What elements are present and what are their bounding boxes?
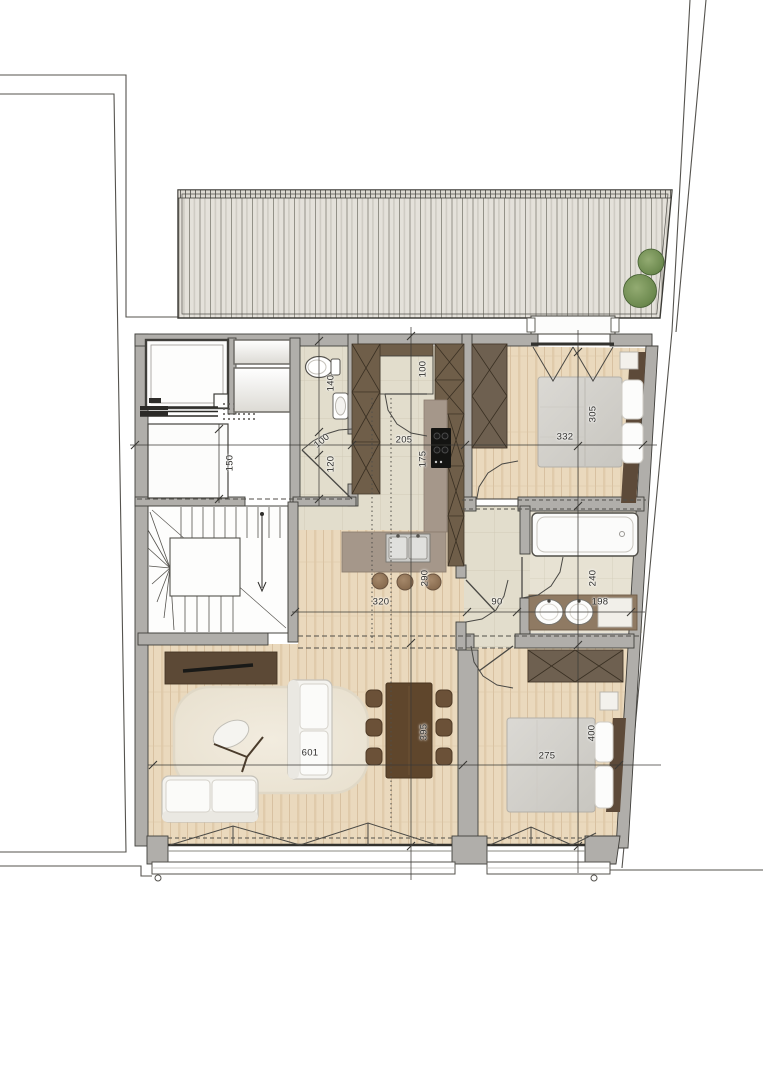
storage-void-room xyxy=(146,340,228,408)
dimension-label-island: 290 xyxy=(420,570,431,587)
bar-stools xyxy=(372,573,441,590)
kitchen-island-sink-icon xyxy=(386,534,430,562)
duct-cupboards xyxy=(234,340,290,412)
dimension-label-corridor: 320 xyxy=(373,597,390,608)
sofa-icon xyxy=(162,776,258,822)
dimension-label-living-depth: 395 xyxy=(419,724,430,741)
wardrobe-icon xyxy=(472,344,507,448)
double-sink-vanity-icon xyxy=(529,595,637,630)
dimension-label-laundry: 150 xyxy=(225,455,236,472)
dimension-label-bedroom2-depth: 400 xyxy=(587,725,598,742)
sofa-icon xyxy=(288,680,332,779)
nightstand xyxy=(620,352,638,369)
dimension-label-pantry: 100 xyxy=(418,361,429,378)
laundry-room-floor xyxy=(148,424,228,498)
dimension-label-bath-width: 198 xyxy=(592,597,609,608)
bush-icon xyxy=(638,249,664,275)
dimension-label-living-width: 601 xyxy=(302,748,319,759)
bathtub-icon xyxy=(532,513,638,556)
dimension-label-kitchen-depth: 175 xyxy=(418,451,429,468)
dimension-label-hallway: 90 xyxy=(491,597,502,608)
cooktop-icon xyxy=(431,428,451,468)
dimension-label-kitchen-width: 205 xyxy=(396,435,413,446)
wardrobe-icon xyxy=(528,650,623,682)
bush-icon xyxy=(624,275,657,308)
floor-plan-drawing xyxy=(0,0,763,1080)
sliding-door xyxy=(140,406,218,416)
dimension-label-bedroom2-width: 275 xyxy=(539,751,556,762)
floor-plan-page: 140 100 120 150 100 205 175 290 320 90 1… xyxy=(0,0,763,1080)
staircase xyxy=(148,506,288,633)
dimension-label-bedroom1-width: 332 xyxy=(557,432,574,443)
nightstand xyxy=(600,692,618,710)
dimension-label-hall: 120 xyxy=(326,456,337,473)
dimension-label-bath-depth: 240 xyxy=(588,570,599,587)
dimension-label-wc: 140 xyxy=(326,375,337,392)
dimension-label-bedroom1-depth: 305 xyxy=(588,406,599,423)
terrace-deck xyxy=(178,190,672,318)
